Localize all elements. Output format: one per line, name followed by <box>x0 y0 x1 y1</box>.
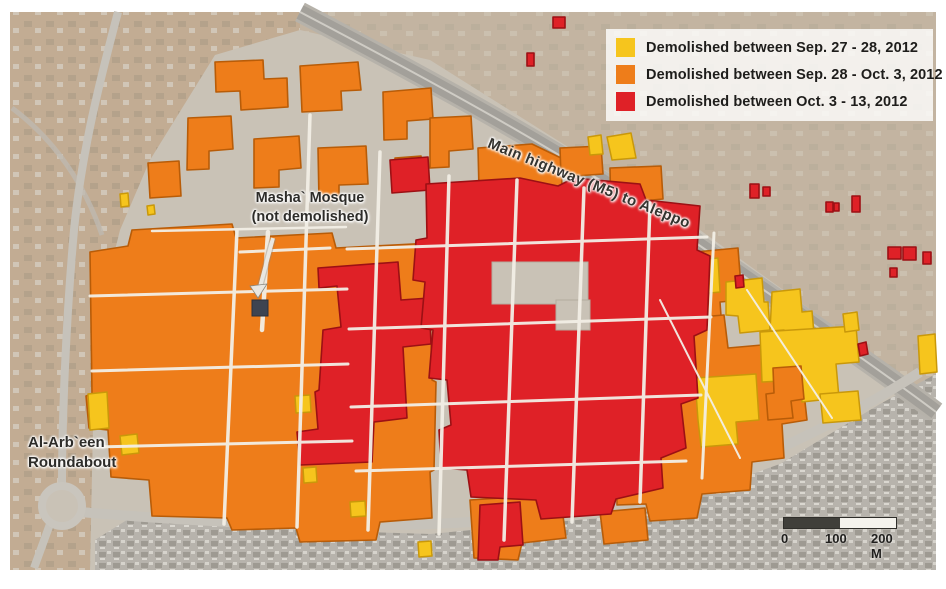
mosque-label-line1: Masha` Mosque <box>240 189 380 208</box>
roundabout-label-line1: Al-Arb`een <box>28 433 116 453</box>
scale-bar: 0 100 200 M <box>783 517 899 547</box>
scale-tick-100: 100 <box>825 531 847 546</box>
mosque-label: Masha` Mosque (not demolished) <box>240 189 380 227</box>
legend: Demolished between Sep. 27 - 28, 2012 De… <box>606 29 933 121</box>
roundabout <box>42 486 82 526</box>
legend-item-label: Demolished between Sep. 28 - Oct. 3, 201… <box>646 67 943 83</box>
mosque-label-line2: (not demolished) <box>240 208 380 227</box>
scale-tick-200: 200 M <box>871 531 899 561</box>
legend-item: Demolished between Oct. 3 - 13, 2012 <box>616 92 923 111</box>
map-screenshot: Demolished between Sep. 27 - 28, 2012 De… <box>0 0 946 589</box>
legend-item: Demolished between Sep. 28 - Oct. 3, 201… <box>616 65 923 84</box>
scale-bar-segments <box>783 517 897 529</box>
legend-swatch-yellow <box>616 38 635 57</box>
scale-bar-dark-segment <box>784 518 840 528</box>
roundabout-label-line2: Roundabout <box>28 453 116 473</box>
legend-swatch-red <box>616 92 635 111</box>
legend-item-label: Demolished between Sep. 27 - 28, 2012 <box>646 40 918 56</box>
legend-item: Demolished between Sep. 27 - 28, 2012 <box>616 38 923 57</box>
legend-swatch-orange <box>616 65 635 84</box>
scale-tick-0: 0 <box>781 531 788 546</box>
scale-bar-light-segment <box>840 518 896 528</box>
scale-bar-ticks: 0 100 200 M <box>783 531 899 547</box>
legend-item-label: Demolished between Oct. 3 - 13, 2012 <box>646 94 907 110</box>
roundabout-label: Al-Arb`een Roundabout <box>28 433 116 473</box>
mosque-building <box>252 300 268 316</box>
